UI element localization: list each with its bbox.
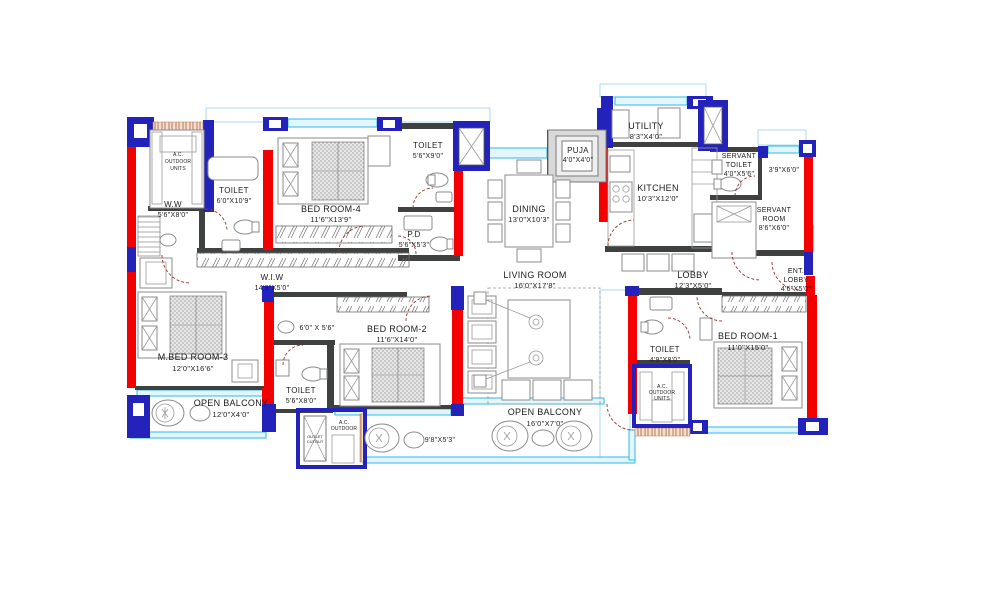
- label-servant-toilet: SERVANT TOILET 4'0"X5'6": [722, 153, 757, 178]
- ent-lobby-l2: LOBBY: [784, 277, 809, 284]
- bedroom1-name: BED ROOM-1: [718, 331, 778, 341]
- bedroom1-dims: 11'0"X15'0": [728, 343, 769, 352]
- servant-room-l2: ROOM: [763, 216, 786, 223]
- toilet-b4-fixtures: [426, 173, 452, 202]
- balcony2-name: OPEN BALCONY: [508, 407, 583, 417]
- bedroom1-wardrobe: [722, 296, 806, 312]
- toilet-b1-fixtures: [641, 297, 672, 334]
- label-toilet-b1: TOILET 4'9"X8'0": [650, 345, 681, 364]
- passage-dims: 3'9"X6'0": [769, 167, 800, 174]
- window-mbed3-balcony: [137, 390, 265, 396]
- bedroom2-name: BED ROOM-2: [367, 324, 427, 334]
- dress-dims: 6'0" X 5'6": [299, 325, 334, 332]
- ent-lobby-l1: ENT.: [788, 268, 804, 275]
- ww-name: W.W: [164, 200, 182, 209]
- lobby-dims: 12'3"X5'0": [674, 281, 711, 290]
- outlet-cutout-label-2: CUTOUT: [307, 439, 324, 444]
- window-utility-top: [615, 97, 687, 105]
- bedroom2-wardrobe: [337, 297, 429, 312]
- balcony2-dims: 16'0"X7'0": [526, 419, 563, 428]
- ac-tl-line2: OUTDOOR: [165, 159, 192, 165]
- servant-room-l1: SERVANT: [757, 207, 792, 214]
- living-dims: 16'0"X17'8": [514, 281, 556, 290]
- label-toilet-b2: TOILET 5'6"X8'0": [286, 386, 317, 405]
- ac-unit-right: A.C. OUTDOOR UNITS: [634, 366, 690, 426]
- label-mbed3: M.BED ROOM-3 12'0"X16'6": [158, 352, 229, 373]
- label-pd: P.D 5'6"X5'3": [399, 230, 430, 249]
- label-dress: 6'0" X 5'6": [299, 325, 334, 332]
- floor-plan-page: A.C. OUTDOOR UNITS A.C. OUTDOOR OUTLET C…: [0, 0, 1000, 600]
- toilet-b4-dims: 5'6"X9'0": [413, 153, 444, 160]
- toilet-b2-fixtures: [276, 360, 327, 381]
- pd-dims: 5'6"X5'3": [399, 242, 430, 249]
- window-bedroom4-top: [288, 119, 377, 127]
- utility-name: UTILITY: [628, 121, 664, 131]
- balcony1-name: OPEN BALCONY: [194, 398, 269, 408]
- toilet-b2-name: TOILET: [286, 386, 316, 395]
- label-passage: 3'9"X6'0": [769, 167, 800, 174]
- puja-dims: 4'0"X4'0": [563, 157, 594, 164]
- toilet-ww-name: TOILET: [219, 186, 249, 195]
- ac-tl-line1: A.C.: [173, 152, 183, 158]
- label-wiw: W.I.W 14'9"X5'0": [255, 273, 290, 292]
- bedroom4-wardrobe: [276, 226, 392, 243]
- lobby-seats: [622, 254, 694, 271]
- window-passage-top: [768, 146, 799, 153]
- servant-room-bed: [712, 202, 756, 258]
- label-kitchen: KITCHEN 10'3"X12'0": [637, 183, 679, 203]
- ac-unit-top-left: A.C. OUTDOOR UNITS: [150, 130, 204, 208]
- ww-fixtures: [138, 216, 176, 288]
- railing-balcony2: [363, 457, 635, 463]
- toilet-b1-dims: 4'9"X8'0": [650, 357, 681, 364]
- window-passage-puja: [489, 148, 547, 158]
- wiw-dims: 14'9"X5'0": [255, 285, 290, 292]
- label-bedroom2: BED ROOM-2 11'6"X14'0": [367, 324, 427, 344]
- living-name: LIVING ROOM: [503, 270, 566, 280]
- balcony2-extra-dims: 9'8"X5'3": [425, 437, 456, 444]
- railing-balcony1: [130, 432, 266, 438]
- toilet-ww-dims: 6'0"X10'9": [217, 198, 252, 205]
- servant-toilet-dims: 4'0"X5'6": [724, 171, 755, 178]
- railing-balcony2-right: [629, 430, 635, 460]
- label-servant-room: SERVANT ROOM 8'6"X6'0": [757, 207, 792, 232]
- floor-plan-drawing: A.C. OUTDOOR UNITS A.C. OUTDOOR OUTLET C…: [0, 0, 1000, 600]
- bedroom2-dims: 11'6"X14'0": [377, 335, 418, 344]
- label-living: LIVING ROOM 16'0"X17'8": [503, 270, 566, 290]
- ac-bottom-line2: OUTDOOR: [331, 426, 358, 432]
- ac-tl-line3: UNITS: [170, 166, 186, 172]
- dining-dims: 13'0"X10'3": [508, 215, 550, 224]
- balcony1-dims: 12'0"X4'0": [212, 410, 249, 419]
- ac-unit-bottom: A.C. OUTDOOR OUTLET CUTOUT: [298, 410, 365, 467]
- pd-name: P.D: [407, 230, 420, 239]
- servant-toilet-l1: SERVANT: [722, 153, 757, 160]
- bedroom4-furniture: [276, 136, 392, 243]
- dining-name: DINING: [512, 204, 545, 214]
- ww-dims: 5'6"X8'0": [158, 212, 189, 219]
- lobby-name: LOBBY: [677, 270, 709, 280]
- living-room-furniture: [468, 288, 600, 404]
- wiw-shelf-hatch: [197, 253, 409, 267]
- mbed3-name: M.BED ROOM-3: [158, 352, 229, 362]
- window-bedroom1-bottom: [695, 427, 799, 433]
- utility-dims: 8'3"X4'0": [630, 132, 663, 141]
- servant-toilet-l2: TOILET: [726, 162, 753, 169]
- label-toilet-ww: TOILET 6'0"X10'9": [217, 186, 252, 205]
- label-toilet-b4: TOILET 5'6"X9'0": [413, 141, 444, 160]
- label-lobby: LOBBY 12'3"X5'0": [674, 270, 711, 290]
- toilet-b2-dims: 5'6"X8'0": [286, 398, 317, 405]
- ent-lobby-dims: 4'6"X5'0": [781, 286, 812, 293]
- ac-right-line3: UNITS: [654, 396, 670, 402]
- bedroom1-furniture: [700, 296, 806, 408]
- kitchen-name: KITCHEN: [637, 183, 679, 193]
- puja-name: PUJA: [567, 146, 589, 155]
- toilet-b1-name: TOILET: [650, 345, 680, 354]
- kitchen-dims: 10'3"X12'0": [637, 194, 679, 203]
- label-bedroom4: BED ROOM-4 11'6"X13'9": [301, 204, 361, 224]
- puja-room: [548, 130, 606, 182]
- bedroom4-name: BED ROOM-4: [301, 204, 361, 214]
- wiw-name: W.I.W: [261, 273, 284, 282]
- mbed3-dims: 12'0"X16'6": [172, 364, 214, 373]
- toilet-b4-name: TOILET: [413, 141, 443, 150]
- bedroom4-dims: 11'6"X13'9": [311, 215, 352, 224]
- servant-room-dims: 8'6"X6'0": [759, 225, 790, 232]
